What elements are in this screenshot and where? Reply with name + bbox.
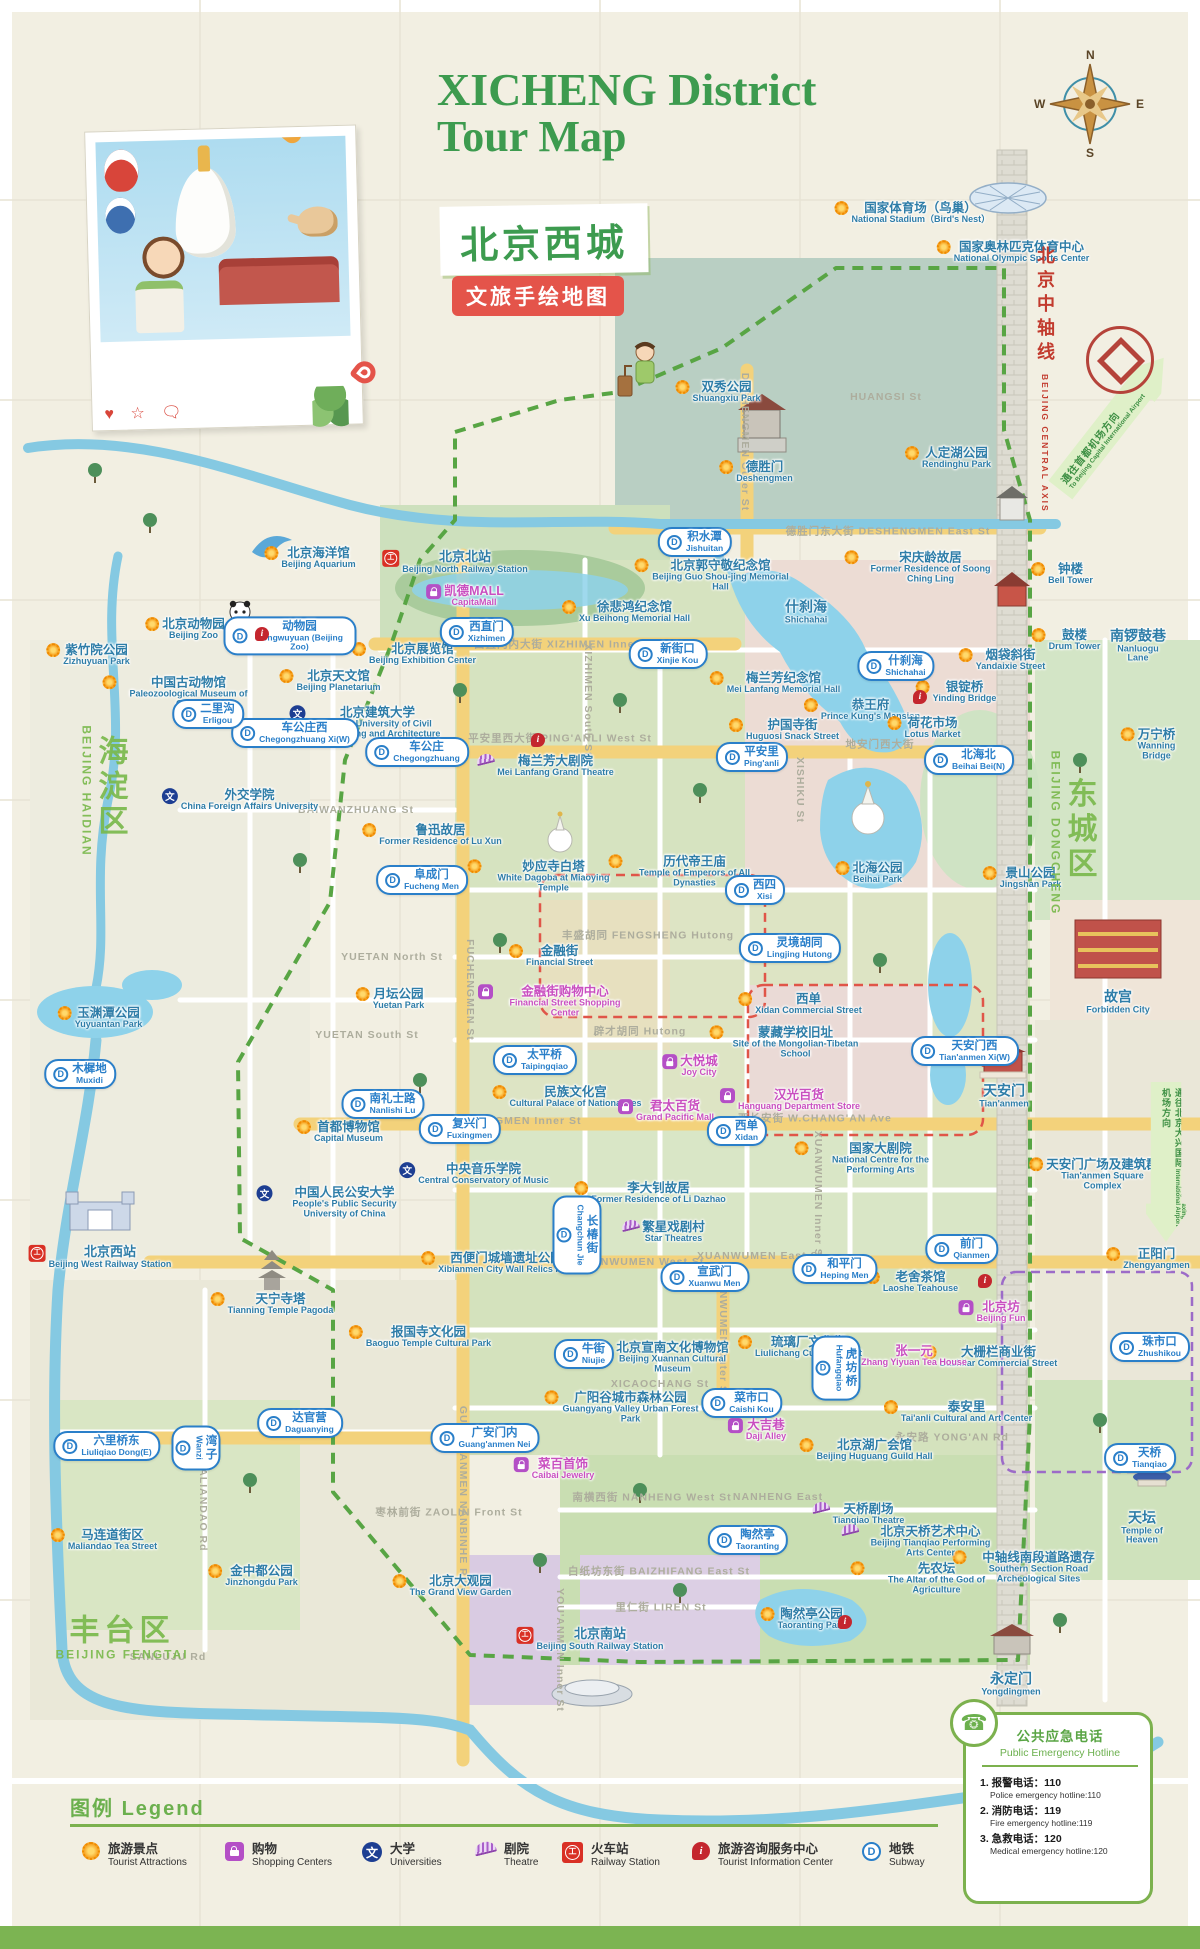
subtitle-card: 北京西城 [439, 203, 648, 276]
sun-icon [82, 1842, 100, 1860]
legend-item-railway: 工火车站Railway Station [562, 1842, 660, 1869]
railway-glyph: 工 [565, 1845, 580, 1860]
legend-item-en: Railway Station [591, 1857, 660, 1869]
legend-item-cn: 地铁 [889, 1842, 925, 1857]
world-heritage-emblem [1086, 326, 1154, 394]
legend-item-en: Theatre [504, 1857, 538, 1869]
legend-item-cn: 大学 [390, 1842, 442, 1857]
legend-item-text: 火车站Railway Station [591, 1842, 660, 1869]
heart-star-chat-icons: ♥ ☆ 🗨 [104, 402, 188, 424]
title-line1: XICHENG District [437, 66, 816, 114]
page-title: XICHENG District Tour Map [437, 66, 816, 160]
legend-item-sun: 旅游景点Tourist Attractions [82, 1842, 187, 1869]
legend-item-cn: 旅游咨询服务中心 [718, 1842, 833, 1857]
subtitle-banner: 文旅手绘地图 [452, 276, 624, 316]
footer-band [0, 1926, 1200, 1949]
hotline-item-cn: 3. 急救电话：120 [980, 1831, 1140, 1846]
hotline-items: 1. 报警电话：110Police emergency hotline:1102… [980, 1775, 1140, 1856]
opera-mask-blue [105, 197, 136, 234]
legend-item-text: 旅游咨询服务中心Tourist Information Center [718, 1842, 833, 1869]
central-axis-cn: 北京中轴线 [1035, 246, 1055, 366]
compass-star [1048, 62, 1132, 146]
compass-w: W [1034, 97, 1045, 111]
legend-item-text: 大学Universities [390, 1842, 442, 1869]
district-dongcheng: 东城区BEIJING DONGCHENG [1049, 745, 1096, 916]
title-line2: Tour Map [437, 114, 816, 160]
legend-item-university: 文大学Universities [362, 1842, 442, 1869]
railway-icon: 工 [562, 1842, 583, 1863]
hotline-item-en: Medical emergency hotline:120 [990, 1846, 1140, 1856]
legend-item-cn: 旅游景点 [108, 1842, 187, 1857]
central-axis-en: BEIJING CENTRAL AXIS [1040, 374, 1050, 513]
postcard-scene [95, 136, 350, 342]
plant-drawing [312, 386, 349, 431]
legend-title: 图例 Legend [70, 1792, 205, 1821]
legend-item-en: Shopping Centers [252, 1857, 332, 1869]
legend-item-en: Tourist Attractions [108, 1857, 187, 1869]
phone-icon: ☎ [950, 1699, 998, 1747]
legend-title-cn: 图例 [70, 1798, 114, 1820]
district-dongcheng-en: BEIJING DONGCHENG [1049, 751, 1063, 916]
district-haidian: 海淀区BEIJING HAIDIAN [80, 719, 127, 856]
legend-item-subway: D地铁Subway [862, 1842, 925, 1869]
central-axis-label: 北京中轴线 BEIJING CENTRAL AXIS [1032, 246, 1058, 513]
xicheng-tour-map-poster: XICHENG District Tour Map 北京西城 文旅手绘地图 ♥ … [0, 0, 1200, 1949]
legend-item-shopping: 购物Shopping Centers [225, 1842, 332, 1869]
tourist-girl-drawing [134, 236, 192, 323]
hotline-item-1: 1. 报警电话：110Police emergency hotline:110 [980, 1775, 1140, 1800]
legend-title-en: Legend [122, 1798, 205, 1820]
emergency-hotline-panel: ☎ 公共应急电话 Public Emergency Hotline 1. 报警电… [963, 1712, 1153, 1904]
hotline-item-2: 2. 消防电话：119Fire emergency hotline:119 [980, 1803, 1140, 1828]
bag-glyph [230, 1850, 239, 1856]
subway-icon: D [862, 1842, 881, 1861]
hotline-title-en: Public Emergency Hotline [980, 1747, 1140, 1759]
cover-postcard-illustration: ♥ ☆ 🗨 [84, 124, 364, 431]
info-icon: i [692, 1842, 710, 1860]
hotline-rule [982, 1765, 1138, 1767]
compass-rose: N E S W [1048, 62, 1132, 146]
legend-item-cn: 剧院 [504, 1842, 538, 1857]
hotline-item-en: Police emergency hotline:110 [990, 1790, 1140, 1800]
legend-item-cn: 购物 [252, 1842, 332, 1857]
hotline-item-cn: 2. 消防电话：119 [980, 1803, 1140, 1818]
red-wall-drawing [219, 256, 340, 305]
legend-item-cn: 火车站 [591, 1842, 660, 1857]
district-fengtai-cn: 丰台区 [55, 1615, 188, 1648]
district-fengtai-en: BEIJING FENGTAI [55, 1648, 188, 1662]
subtitle-cn: 北京西城 [460, 223, 629, 268]
legend-item-text: 地铁Subway [889, 1842, 925, 1869]
hotline-title-cn: 公共应急电话 [980, 1725, 1140, 1745]
theatre-icon [473, 1840, 497, 1857]
legend-item-en: Tourist Information Center [718, 1857, 833, 1869]
legend-item-theatre: 剧院Theatre [474, 1842, 538, 1869]
opera-mask-red [104, 149, 139, 192]
legend-item-text: 购物Shopping Centers [252, 1842, 332, 1869]
legend-item-text: 剧院Theatre [504, 1842, 538, 1869]
district-haidian-en: BEIJING HAIDIAN [80, 725, 94, 856]
teapot-drawing [297, 206, 338, 237]
compass-n: N [1086, 48, 1095, 62]
compass-e: E [1136, 97, 1144, 111]
legend-item-en: Universities [390, 1857, 442, 1869]
daxing-airport-cn: 通往北京大兴国际机场方向 [1146, 1088, 1186, 1169]
legend-item-info: i旅游咨询服务中心Tourist Information Center [692, 1842, 833, 1869]
shopping-icon [225, 1842, 244, 1861]
legend-item-text: 旅游景点Tourist Attractions [108, 1842, 187, 1869]
district-haidian-cn: 海淀区 [94, 719, 127, 856]
legend-rule [70, 1824, 938, 1827]
map-pin-orange [280, 136, 305, 147]
district-dongcheng-cn: 东城区 [1063, 745, 1096, 916]
legend-item-en: Subway [889, 1857, 925, 1869]
hotline-item-3: 3. 急救电话：120Medical emergency hotline:120 [980, 1831, 1140, 1856]
university-icon: 文 [362, 1842, 382, 1862]
daxing-airport-arrow: 通往北京大兴国际机场方向 To Beijing Daxing Internati… [1146, 1082, 1186, 1242]
hotline-item-cn: 1. 报警电话：110 [980, 1775, 1140, 1790]
compass-s: S [1086, 146, 1094, 160]
hotline-item-en: Fire emergency hotline:119 [990, 1818, 1140, 1828]
district-fengtai: 丰台区BEIJING FENGTAI [55, 1615, 188, 1662]
